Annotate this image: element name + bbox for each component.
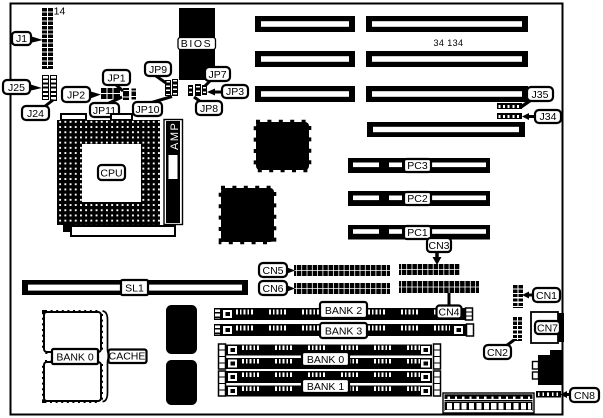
svg-text:BIOS: BIOS: [181, 38, 213, 50]
svg-text:CN4: CN4: [438, 307, 459, 319]
svg-text:J35: J35: [532, 89, 549, 101]
svg-text:JP1: JP1: [107, 73, 125, 85]
svg-text:BANK 1: BANK 1: [307, 381, 345, 393]
svg-text:CN8: CN8: [574, 390, 595, 402]
svg-text:CN7: CN7: [537, 323, 558, 335]
svg-text:JP9: JP9: [149, 64, 167, 76]
svg-text:J25: J25: [8, 82, 25, 94]
svg-text:J24: J24: [27, 108, 44, 120]
svg-text:BANK 2: BANK 2: [325, 305, 363, 317]
svg-text:BANK 0: BANK 0: [307, 354, 345, 366]
svg-text:JP3: JP3: [226, 86, 244, 98]
svg-text:JP8: JP8: [200, 103, 218, 115]
svg-text:JP2: JP2: [67, 90, 85, 102]
svg-text:CPU: CPU: [100, 168, 122, 180]
svg-text:CN5: CN5: [262, 265, 283, 277]
svg-text:CN1: CN1: [536, 290, 557, 302]
svg-text:JP10: JP10: [136, 104, 160, 116]
svg-text:CN3: CN3: [428, 240, 449, 252]
svg-text:PC1: PC1: [407, 227, 428, 239]
svg-text:BANK 0: BANK 0: [56, 352, 94, 364]
svg-text:J34: J34: [540, 111, 557, 123]
svg-text:CACHE: CACHE: [109, 351, 146, 363]
svg-text:PC2: PC2: [407, 193, 428, 205]
svg-text:BANK 3: BANK 3: [325, 326, 363, 338]
svg-text:CN6: CN6: [262, 283, 283, 295]
svg-text:AMP: AMP: [169, 122, 181, 150]
svg-text:14: 14: [54, 6, 66, 18]
svg-text:PC3: PC3: [407, 160, 428, 172]
svg-text:CN2: CN2: [487, 347, 508, 359]
svg-text:JP7: JP7: [208, 69, 226, 81]
svg-text:SL1: SL1: [125, 283, 144, 295]
svg-text:34 134: 34 134: [434, 38, 464, 48]
svg-text:J1: J1: [16, 33, 27, 45]
